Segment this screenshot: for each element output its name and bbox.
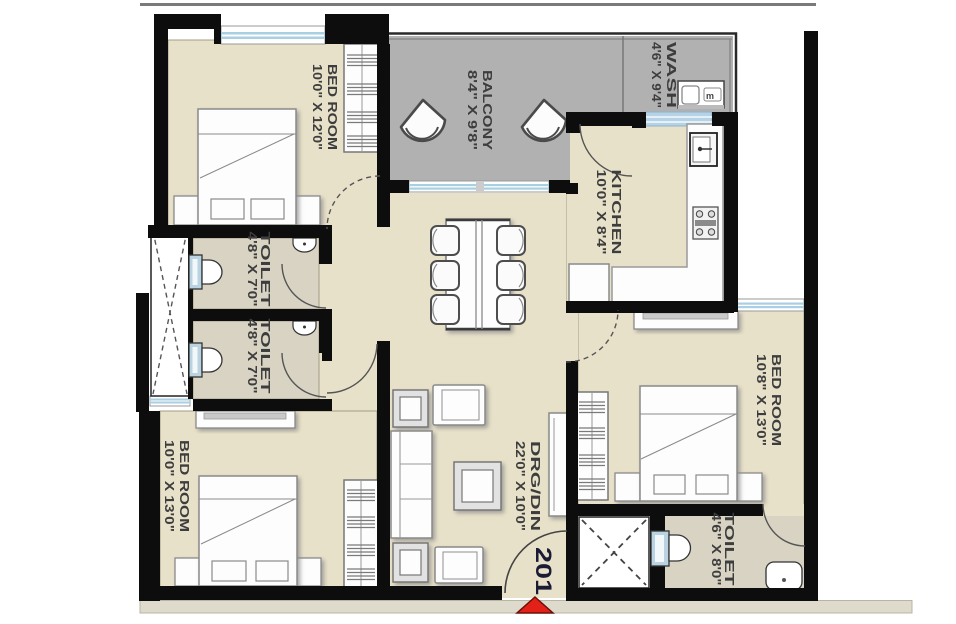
svg-text:BED ROOM: BED ROOM [769, 354, 784, 446]
svg-text:TOILET: TOILET [258, 232, 272, 308]
svg-text:BALCONY: BALCONY [480, 70, 495, 150]
svg-text:201: 201 [531, 547, 556, 595]
svg-text:TOILET: TOILET [258, 319, 272, 395]
svg-text:10'8" X 13'0": 10'8" X 13'0" [754, 354, 769, 446]
svg-text:BED ROOM: BED ROOM [177, 440, 192, 532]
svg-text:DRG/DIN: DRG/DIN [528, 441, 543, 531]
svg-text:BED ROOM: BED ROOM [325, 64, 340, 150]
svg-text:TOILET: TOILET [722, 513, 736, 587]
svg-text:22'0" X 10'0": 22'0" X 10'0" [513, 441, 528, 531]
svg-text:8'4" X 9'8": 8'4" X 9'8" [465, 70, 480, 150]
svg-text:4'6" X 9'4": 4'6" X 9'4" [649, 42, 664, 108]
svg-text:10'0" X 13'0": 10'0" X 13'0" [162, 440, 177, 532]
svg-text:WASH: WASH [664, 42, 679, 108]
svg-text:KITCHEN: KITCHEN [609, 170, 624, 255]
svg-text:4'8" X 7'0": 4'8" X 7'0" [245, 319, 259, 394]
svg-text:10'0" X 12'0": 10'0" X 12'0" [310, 64, 325, 150]
svg-text:m: m [706, 91, 714, 101]
svg-text:4'8" X 7'0": 4'8" X 7'0" [245, 232, 259, 307]
svg-text:10'0" X 8'4": 10'0" X 8'4" [594, 170, 609, 255]
svg-text:4'6" X 8'0": 4'6" X 8'0" [709, 513, 723, 586]
